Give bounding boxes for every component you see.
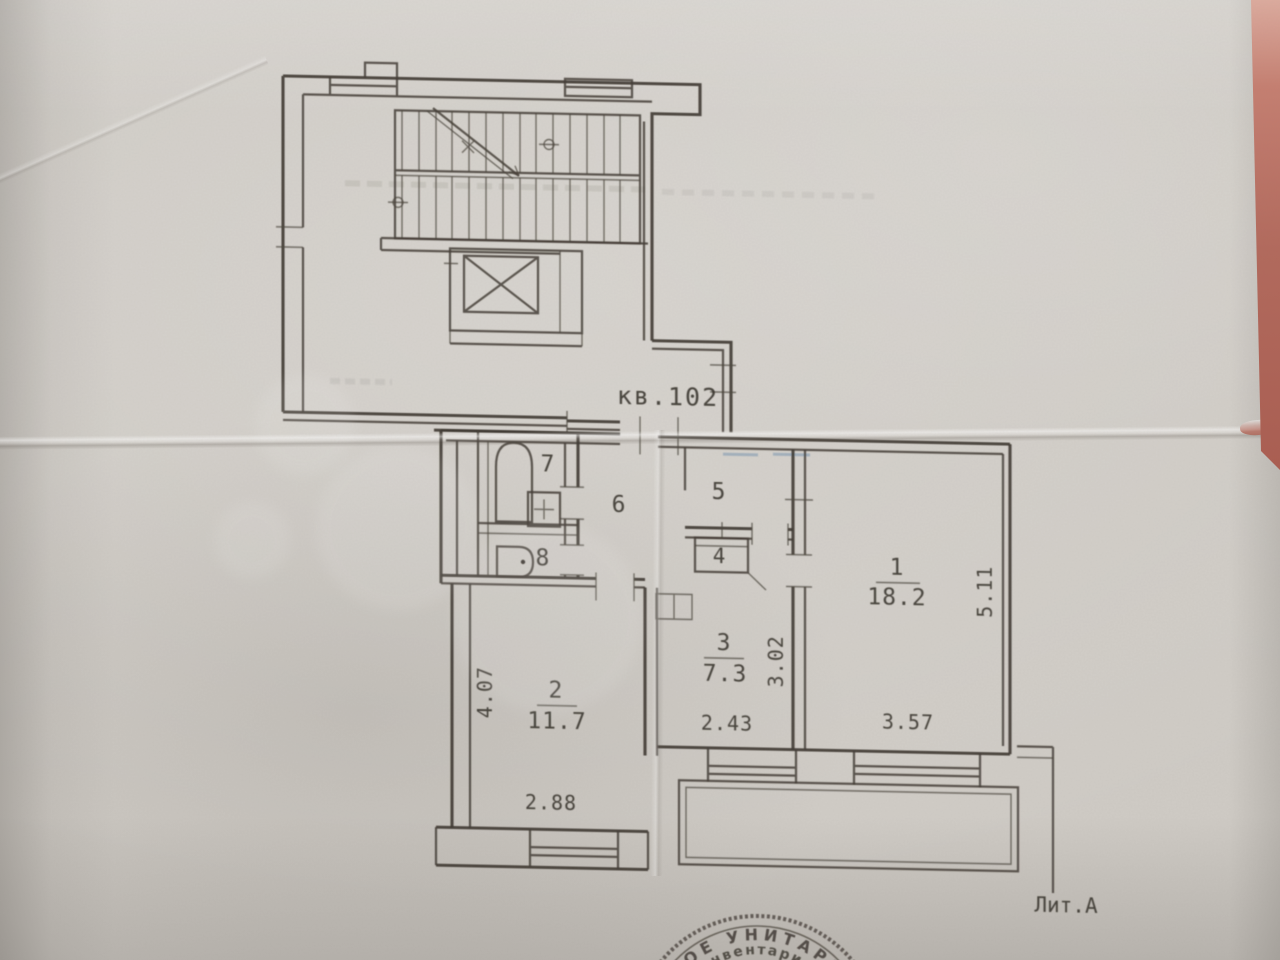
- vent-shaft: [365, 63, 397, 79]
- dim-room1-depth: 5.11: [973, 565, 997, 618]
- room-1-fraction-line: [876, 582, 920, 583]
- elevator-cab: [464, 256, 538, 314]
- balcony: [679, 739, 1053, 893]
- room-2-area: 11.7: [527, 708, 586, 735]
- apartment-number-label: кв.102: [617, 381, 719, 412]
- dim-room1-width: 3.57: [882, 709, 934, 734]
- closet-4-details: [695, 522, 766, 590]
- stair-direction-arrow: [433, 108, 519, 176]
- bath-south-wall: [441, 575, 645, 579]
- dim-room3-depth: 3.02: [764, 635, 788, 688]
- closet-and-fixtures: [656, 521, 766, 621]
- sink-cross-icon: [534, 499, 554, 519]
- wall-corridor-room3: [685, 527, 793, 529]
- room2-door-jambs: [596, 572, 634, 601]
- blue-pen-marks: [723, 453, 810, 456]
- bathroom-block: [478, 431, 584, 578]
- dim-room3-width: 2.43: [701, 711, 753, 736]
- room-2-fraction-line: [537, 705, 577, 706]
- west-wall: [441, 430, 452, 827]
- wall-line: [283, 94, 652, 428]
- room3-door-jambs: [752, 523, 788, 546]
- south-wall-rooms31: [657, 747, 1010, 754]
- balcony-inner: [686, 787, 1011, 864]
- toilet-icon: [497, 546, 533, 577]
- dim-room2-width: 2.88: [525, 790, 577, 815]
- room1-door-jambs: [785, 499, 813, 587]
- plan-lines: 1 18.2 2 11.7 3 7.3 4 5 6 7 8 5.11 3.57 …: [276, 61, 1098, 918]
- room2-window: [436, 827, 648, 869]
- room-4-number: 4: [713, 544, 726, 568]
- room-3-number: 3: [717, 630, 732, 656]
- elevator-shaft: [444, 248, 582, 346]
- divider-7-8-inner: [478, 533, 578, 535]
- room-3-area: 7.3: [703, 661, 748, 688]
- liter-label: Лит.А: [1034, 893, 1098, 918]
- room-6-number: 6: [612, 492, 627, 518]
- bathtub-icon: [496, 442, 532, 522]
- east-wall-stub: [1017, 746, 1053, 893]
- room-2-number: 2: [549, 677, 564, 703]
- stair-direction-arrow2: [427, 111, 519, 179]
- bath-south-wall-inner: [441, 583, 645, 587]
- landing-edge: [381, 238, 648, 256]
- staircase: [381, 107, 648, 256]
- print-through-smudge: [330, 183, 882, 393]
- room-1-number: 1: [890, 555, 905, 581]
- floorplan-photo: 1 18.2 2 11.7 3 7.3 4 5 6 7 8 5.11 3.57 …: [0, 0, 1280, 960]
- stove-icon: [656, 594, 692, 620]
- room-7-number: 7: [541, 451, 556, 477]
- toilet-dot: [521, 560, 525, 564]
- stamp: НОЕ УНИТАРН нвентари: [633, 916, 881, 960]
- dim-room2-depth: 4.07: [473, 666, 497, 719]
- room-1-area: 18.2: [867, 584, 926, 611]
- stair-border: [395, 110, 640, 243]
- room-3-fraction-line: [704, 658, 744, 659]
- window: [330, 77, 397, 95]
- west-wall-inner: [457, 441, 470, 828]
- room-8-number: 8: [536, 545, 551, 571]
- east-wall-stub2: [1017, 757, 1053, 758]
- room-labels: 1 18.2 2 11.7 3 7.3 4 5 6 7 8: [527, 451, 926, 742]
- floorplan-svg: 1 18.2 2 11.7 3 7.3 4 5 6 7 8 5.11 3.57 …: [0, 0, 1280, 960]
- room-5-number: 5: [712, 479, 727, 505]
- bath-door-jambs: [560, 487, 584, 576]
